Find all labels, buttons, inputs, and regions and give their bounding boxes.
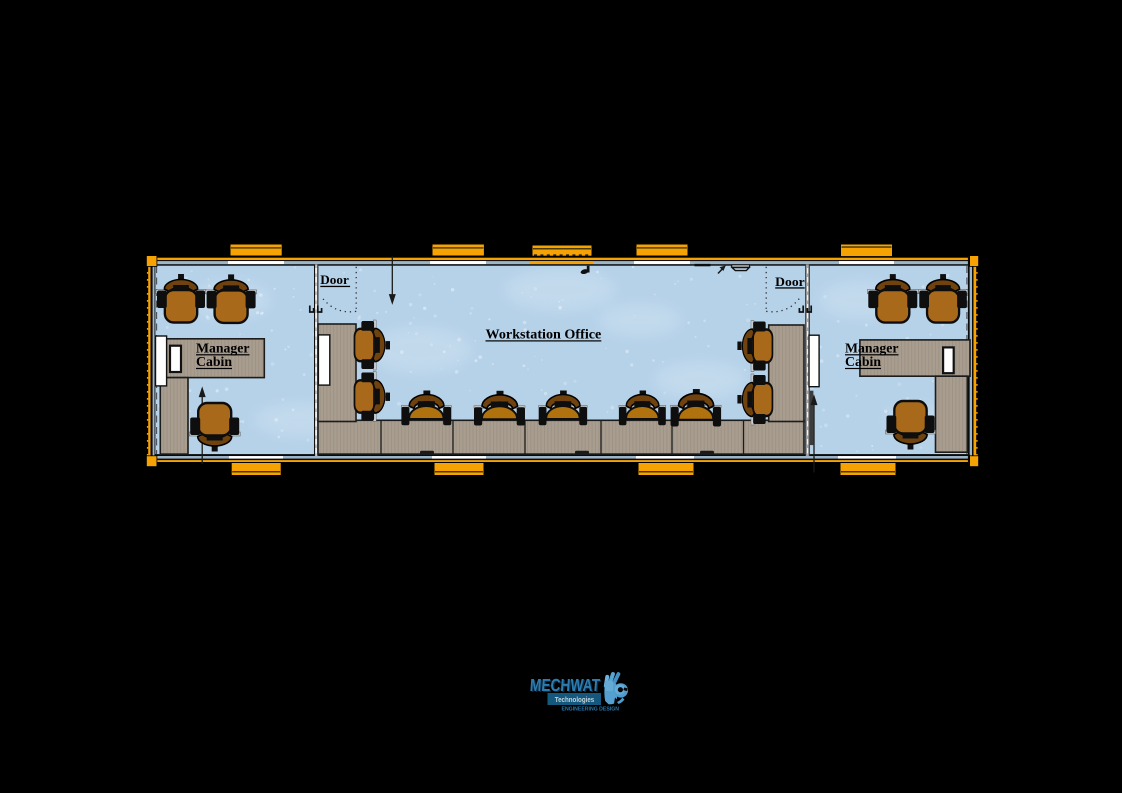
- svg-text:Cabin: Cabin: [845, 355, 881, 370]
- svg-text:Workstation Office: Workstation Office: [486, 327, 602, 342]
- svg-text:Door: Door: [320, 272, 349, 287]
- svg-text:Door: Door: [775, 274, 805, 289]
- svg-text:Technologies: Technologies: [555, 695, 595, 704]
- svg-text:ENGINEERING DESIGN: ENGINEERING DESIGN: [562, 707, 620, 713]
- svg-text:Cabin: Cabin: [196, 355, 232, 370]
- svg-text:MECHWAT: MECHWAT: [529, 675, 601, 695]
